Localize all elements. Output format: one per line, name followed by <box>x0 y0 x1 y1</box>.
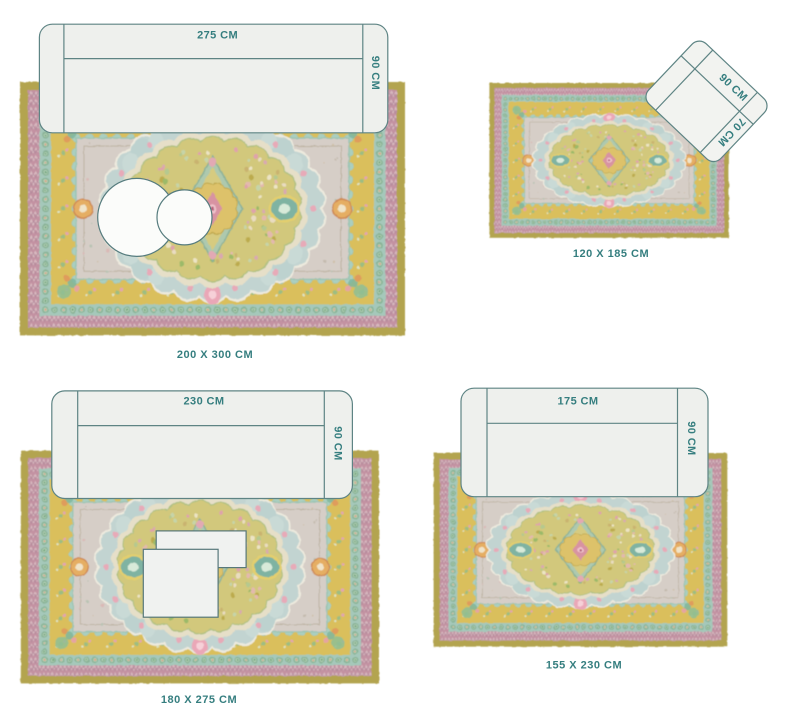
svg-text:90 CM: 90 CM <box>685 421 697 455</box>
svg-text:90 CM: 90 CM <box>369 56 381 90</box>
svg-text:155 X 230 CM: 155 X 230 CM <box>546 660 622 672</box>
svg-text:230 CM: 230 CM <box>184 396 225 408</box>
svg-text:200 X 300 CM: 200 X 300 CM <box>177 349 253 361</box>
svg-text:275 CM: 275 CM <box>197 30 238 42</box>
svg-text:120 X 185 CM: 120 X 185 CM <box>573 248 649 260</box>
svg-text:180 X 275 CM: 180 X 275 CM <box>161 694 237 706</box>
svg-text:175 CM: 175 CM <box>558 396 599 408</box>
svg-text:90 CM: 90 CM <box>332 426 344 460</box>
